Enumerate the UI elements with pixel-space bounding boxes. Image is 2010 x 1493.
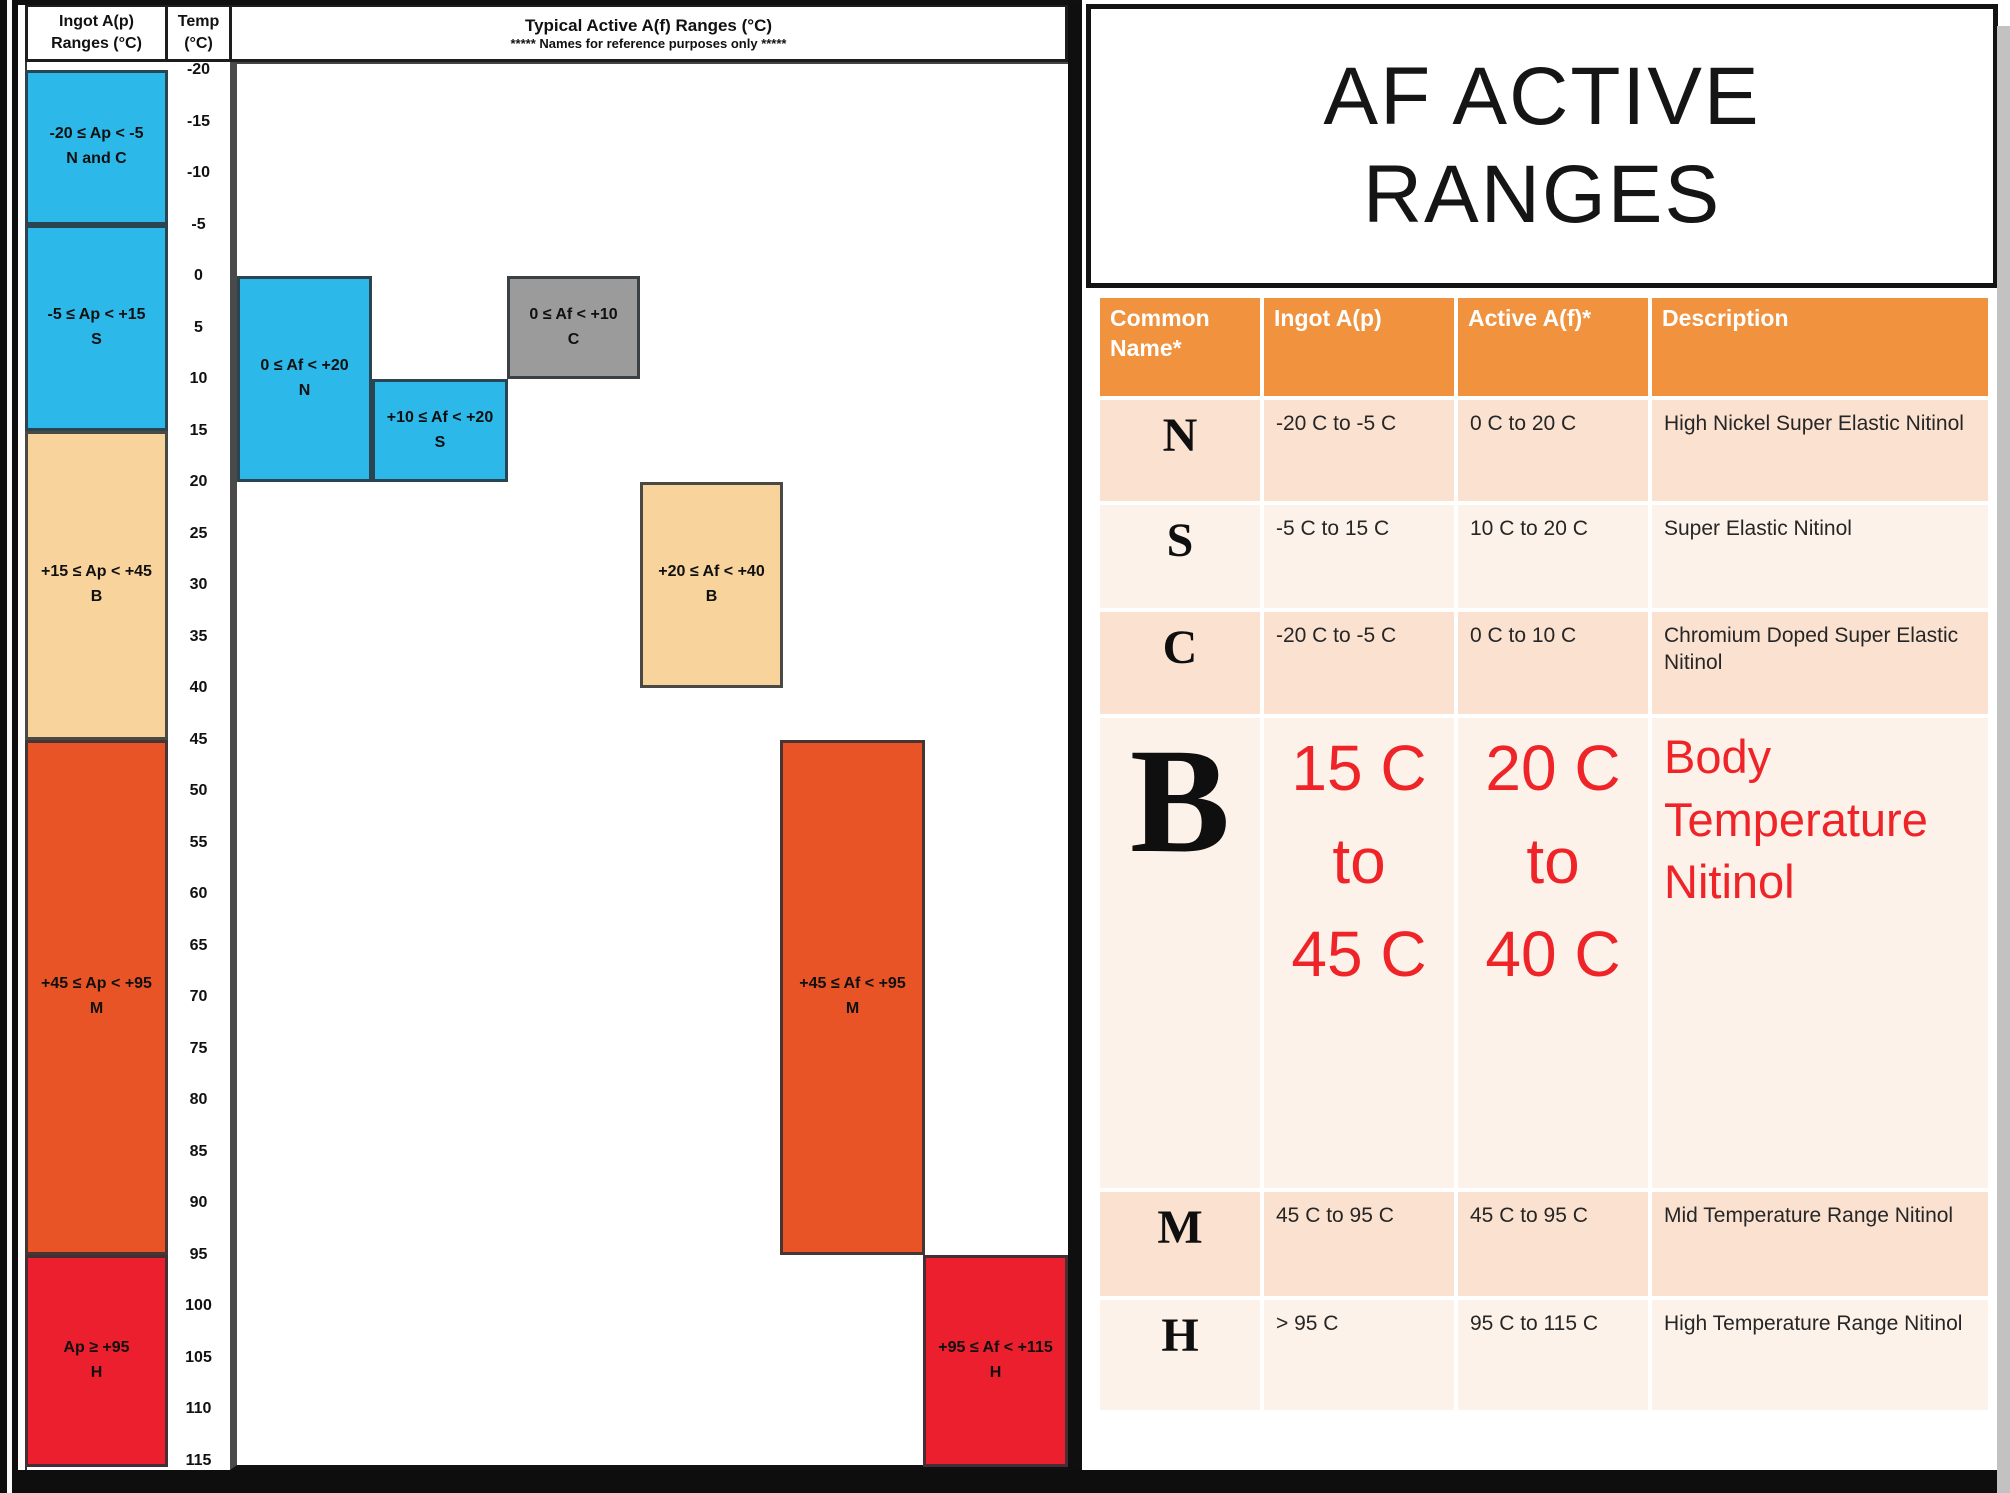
af-box-s-range-label: +10 ≤ Af < +20	[387, 406, 493, 431]
cell-C-ingot: -20 C to -5 C	[1264, 612, 1454, 714]
cell-H-description: High Temperature Range Nitinol	[1652, 1300, 1988, 1410]
cell-B-ingot: 15 C to 45 C	[1264, 718, 1454, 1188]
cell-N-ingot: -20 C to -5 C	[1264, 400, 1454, 501]
chart-header-subtitle: ***** Names for reference purposes only …	[510, 36, 786, 51]
af-box-b-range-label: +20 ≤ Af < +40	[658, 560, 764, 585]
af-table: Common Name*Ingot A(p)Active A(f)*Descri…	[1100, 298, 1988, 1410]
cell-N-common-name: N	[1100, 400, 1260, 501]
chart-header-title: Typical Active A(f) Ranges (°C)	[525, 16, 772, 36]
cell-C-active: 0 C to 10 C	[1458, 612, 1648, 714]
table-header-active-a-f: Active A(f)*	[1458, 298, 1648, 396]
scan-edge-left-line	[7, 0, 12, 1493]
cell-H-ingot: > 95 C	[1264, 1300, 1454, 1410]
cell-B-common-name: B	[1100, 718, 1260, 1188]
cell-C-common-name: C	[1100, 612, 1260, 714]
af-box-m: +45 ≤ Af < +95M	[780, 740, 925, 1255]
page-title-line2: RANGES	[1363, 146, 1721, 244]
ingot-header-line1: Ingot A(p)	[59, 11, 134, 33]
cell-S-active: 10 C to 20 C	[1458, 505, 1648, 608]
af-box-c-range-label: 0 ≤ Af < +10	[529, 303, 617, 328]
af-box-h-name-label: H	[990, 1361, 1002, 1386]
af-box-s: +10 ≤ Af < +20S	[372, 379, 508, 482]
af-box-h-range-label: +95 ≤ Af < +115	[938, 1336, 1053, 1361]
cell-B-description: Body Temperature Nitinol	[1652, 718, 1988, 1188]
scan-edge-right	[1997, 26, 2010, 1493]
cell-S-description: Super Elastic Nitinol	[1652, 505, 1988, 608]
chart-header: Typical Active A(f) Ranges (°C) ***** Na…	[229, 4, 1068, 62]
cell-S-common-name: S	[1100, 505, 1260, 608]
cell-N-active: 0 C to 20 C	[1458, 400, 1648, 501]
cell-N-description: High Nickel Super Elastic Nitinol	[1652, 400, 1988, 501]
scan-edge-bottom	[0, 1470, 2010, 1493]
af-box-c-name-label: C	[568, 328, 580, 353]
page-title-line1: AF ACTIVE	[1323, 48, 1760, 146]
cell-B-active: 20 C to 40 C	[1458, 718, 1648, 1188]
af-box-s-name-label: S	[435, 431, 446, 456]
af-box-b-name-label: B	[706, 585, 718, 610]
af-box-b: +20 ≤ Af < +40B	[640, 482, 783, 688]
af-box-n-range-label: 0 ≤ Af < +20	[260, 354, 348, 379]
temp-header-line1: Temp	[178, 11, 219, 33]
table-header-common-name: Common Name*	[1100, 298, 1260, 396]
ingot-header-line2: Ranges (°C)	[51, 33, 142, 55]
af-box-h: +95 ≤ Af < +115H	[923, 1255, 1068, 1468]
cell-M-ingot: 45 C to 95 C	[1264, 1192, 1454, 1296]
cell-M-active: 45 C to 95 C	[1458, 1192, 1648, 1296]
af-box-n: 0 ≤ Af < +20N	[237, 276, 372, 482]
cell-H-active: 95 C to 115 C	[1458, 1300, 1648, 1410]
cell-M-common-name: M	[1100, 1192, 1260, 1296]
af-box-n-name-label: N	[299, 379, 311, 404]
ingot-column-header: Ingot A(p) Ranges (°C)	[25, 4, 168, 62]
temp-column-header: Temp (°C)	[165, 4, 232, 62]
af-ranges-title-box: AF ACTIVE RANGES	[1086, 4, 1998, 288]
cell-H-common-name: H	[1100, 1300, 1260, 1410]
panel-divider	[1068, 0, 1082, 1470]
af-box-m-name-label: M	[846, 997, 859, 1022]
cell-S-ingot: -5 C to 15 C	[1264, 505, 1454, 608]
table-header-ingot-a-p: Ingot A(p)	[1264, 298, 1454, 396]
cell-M-description: Mid Temperature Range Nitinol	[1652, 1192, 1988, 1296]
table-header-description: Description	[1652, 298, 1988, 396]
af-box-layer: 0 ≤ Af < +20N+10 ≤ Af < +20S0 ≤ Af < +10…	[0, 0, 1068, 1470]
af-active-ranges-figure: Ingot A(p) Ranges (°C) Temp (°C) Typical…	[0, 0, 2010, 1493]
top-edge-bar	[0, 0, 1082, 5]
cell-C-description: Chromium Doped Super Elastic Nitinol	[1652, 612, 1988, 714]
temp-header-line2: (°C)	[184, 33, 213, 55]
af-box-c: 0 ≤ Af < +10C	[507, 276, 640, 379]
af-box-m-range-label: +45 ≤ Af < +95	[799, 972, 905, 997]
